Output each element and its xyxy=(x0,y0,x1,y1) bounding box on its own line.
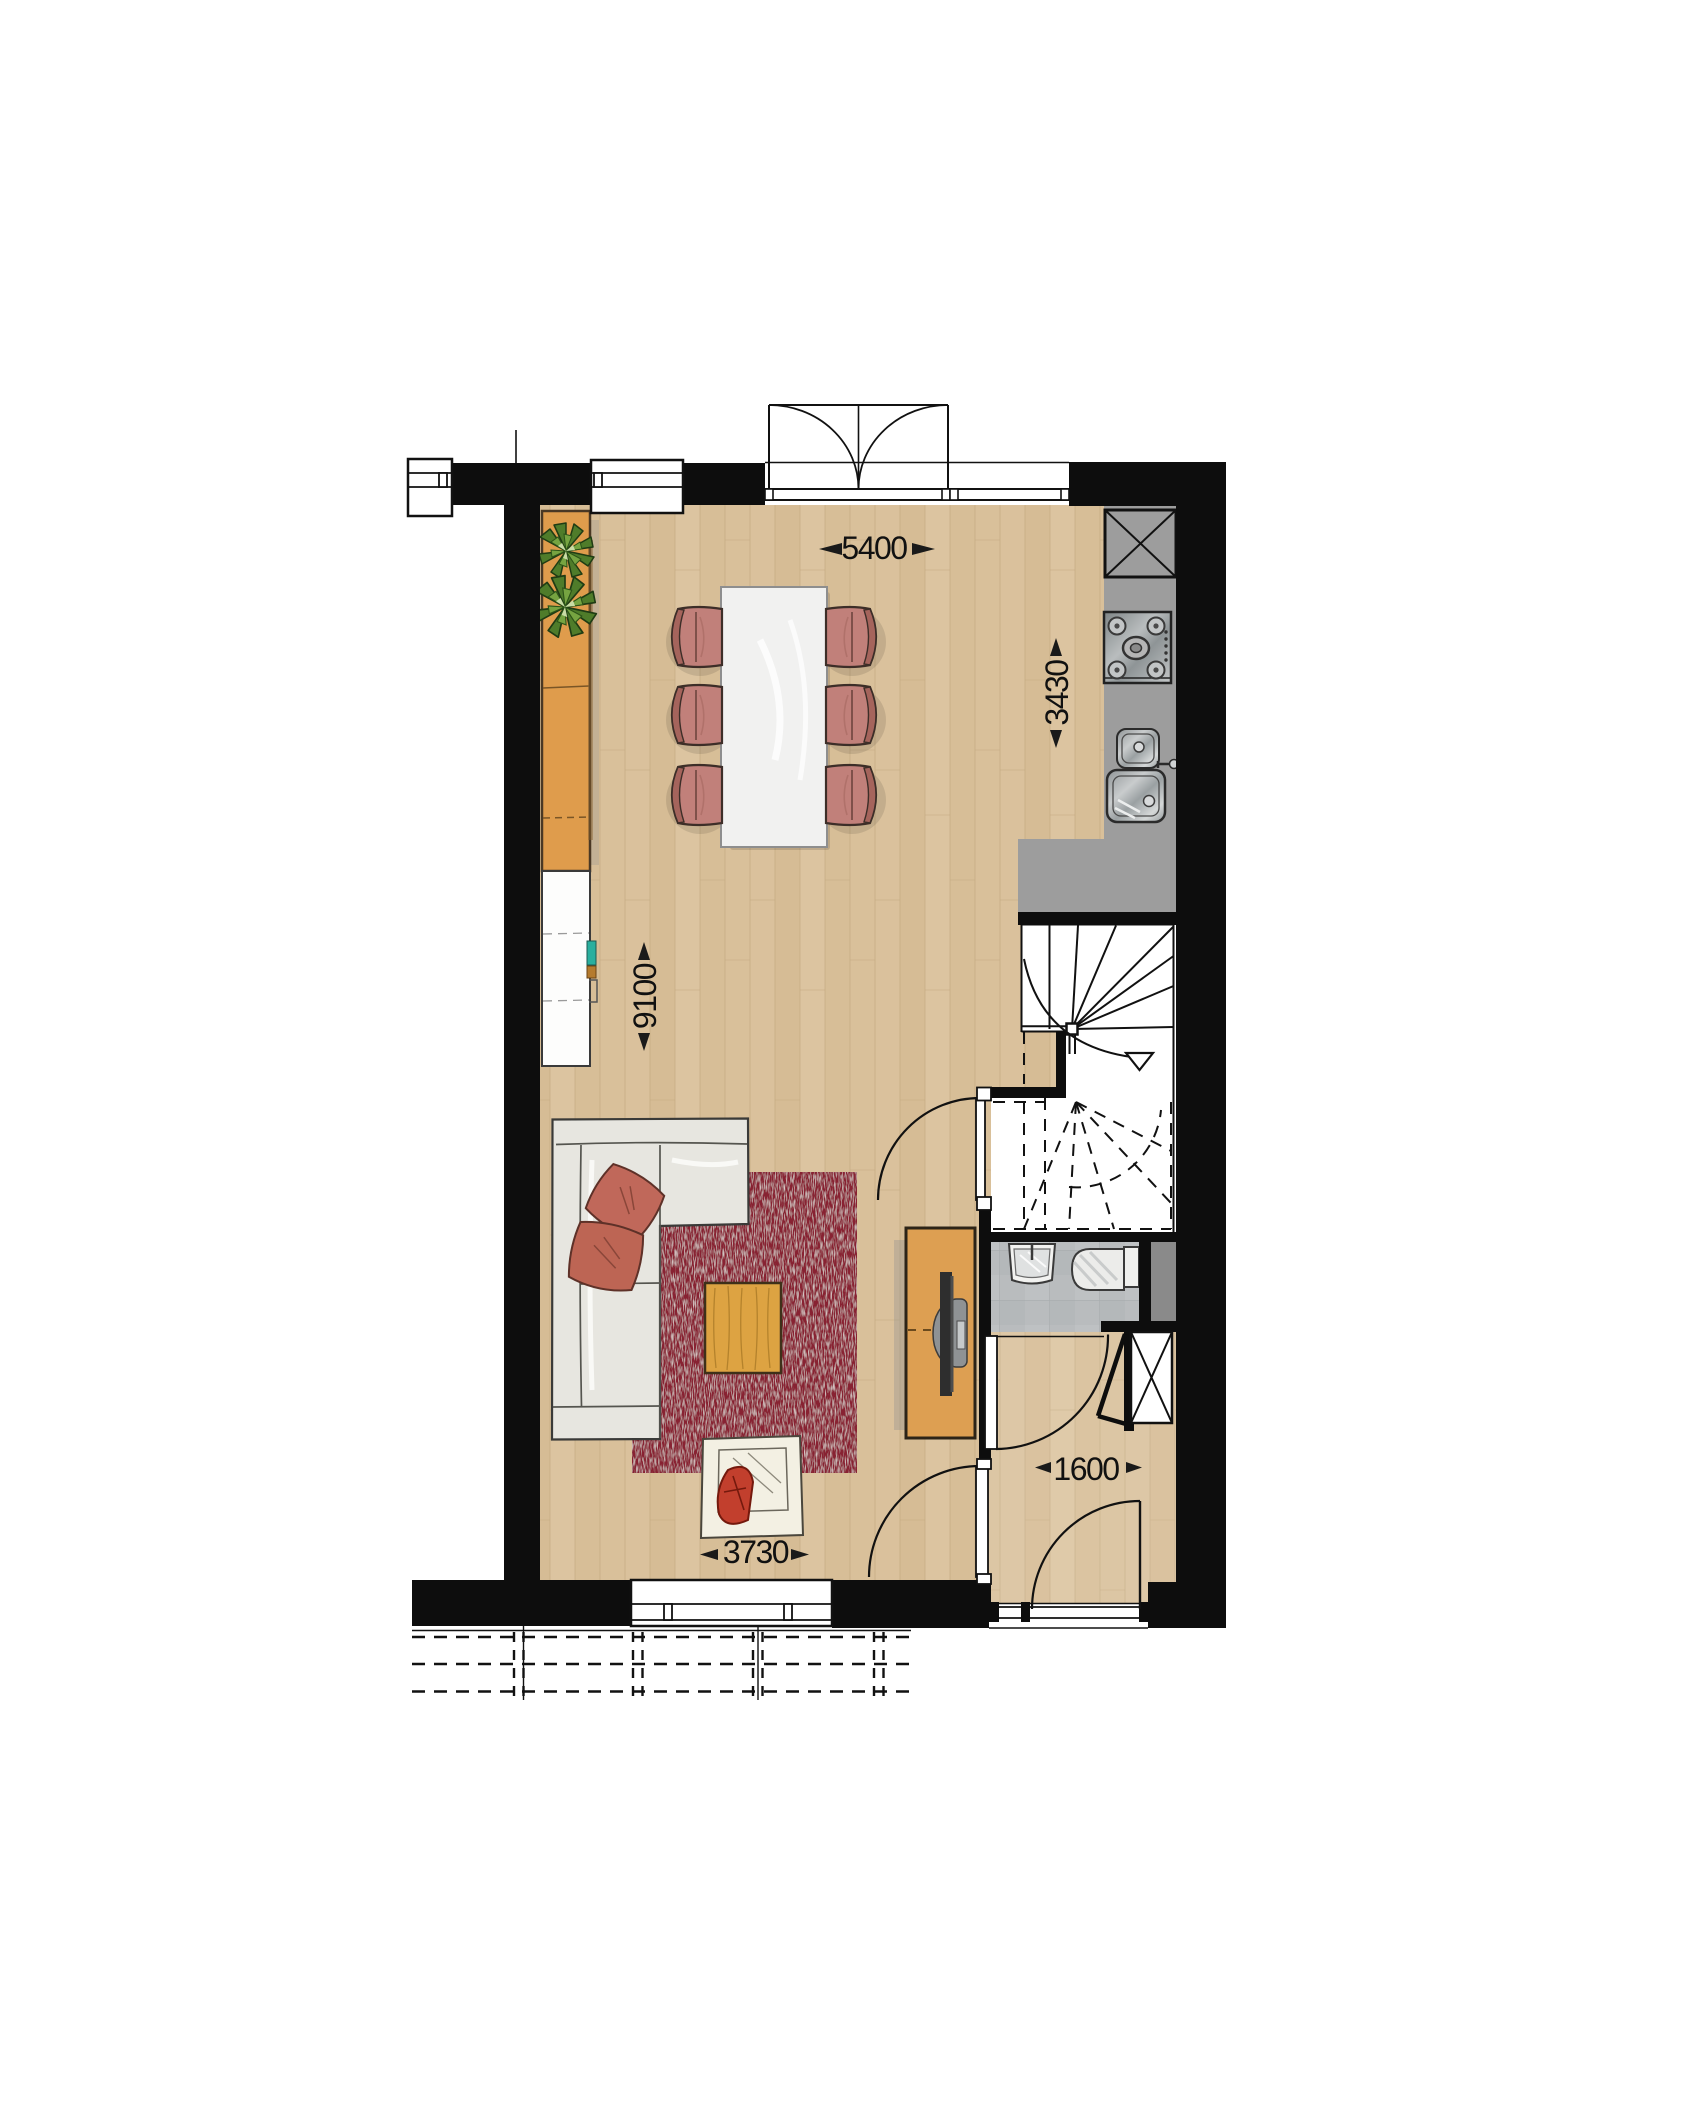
svg-text:5400: 5400 xyxy=(841,530,907,566)
svg-text:3730: 3730 xyxy=(723,1534,789,1570)
svg-text:1600: 1600 xyxy=(1053,1451,1119,1487)
svg-text:9100: 9100 xyxy=(627,963,663,1029)
svg-text:3430: 3430 xyxy=(1039,660,1075,726)
